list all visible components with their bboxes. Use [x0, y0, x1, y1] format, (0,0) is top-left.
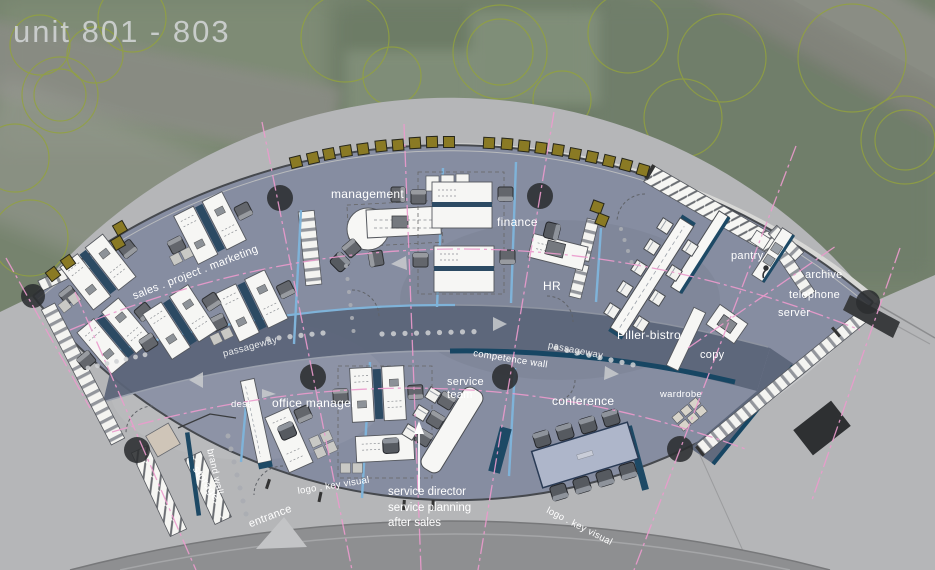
label-archive: archive: [805, 269, 843, 282]
label-after-sales: after sales: [388, 516, 471, 532]
page-title: unit 801 - 803: [13, 14, 231, 50]
label-service-team: service team: [447, 376, 484, 401]
label-finance: finance: [497, 216, 538, 230]
label-service-planning: service planning: [388, 501, 471, 517]
label-management: management: [331, 188, 404, 202]
label-server: server: [778, 307, 810, 320]
label-telephone: telephone: [789, 289, 840, 302]
label-office-manager: office manager: [272, 397, 355, 411]
label-wardrobe: wardrobe: [660, 390, 702, 401]
label-pantry: pantry: [731, 250, 763, 263]
service-desk-2: [355, 434, 414, 463]
label-desk: desk: [231, 400, 252, 411]
label-copy: copy: [700, 349, 724, 362]
label-piller-bistro: Piller-bistro: [617, 329, 681, 343]
label-service-director-block: service director service planning after …: [388, 485, 471, 532]
label-service-director: service director: [388, 485, 471, 501]
label-hr: HR: [543, 280, 561, 294]
label-conference: conference: [552, 395, 614, 409]
floor-plan-screenshot: unit 801 - 803 management finance HR sal…: [0, 0, 935, 570]
